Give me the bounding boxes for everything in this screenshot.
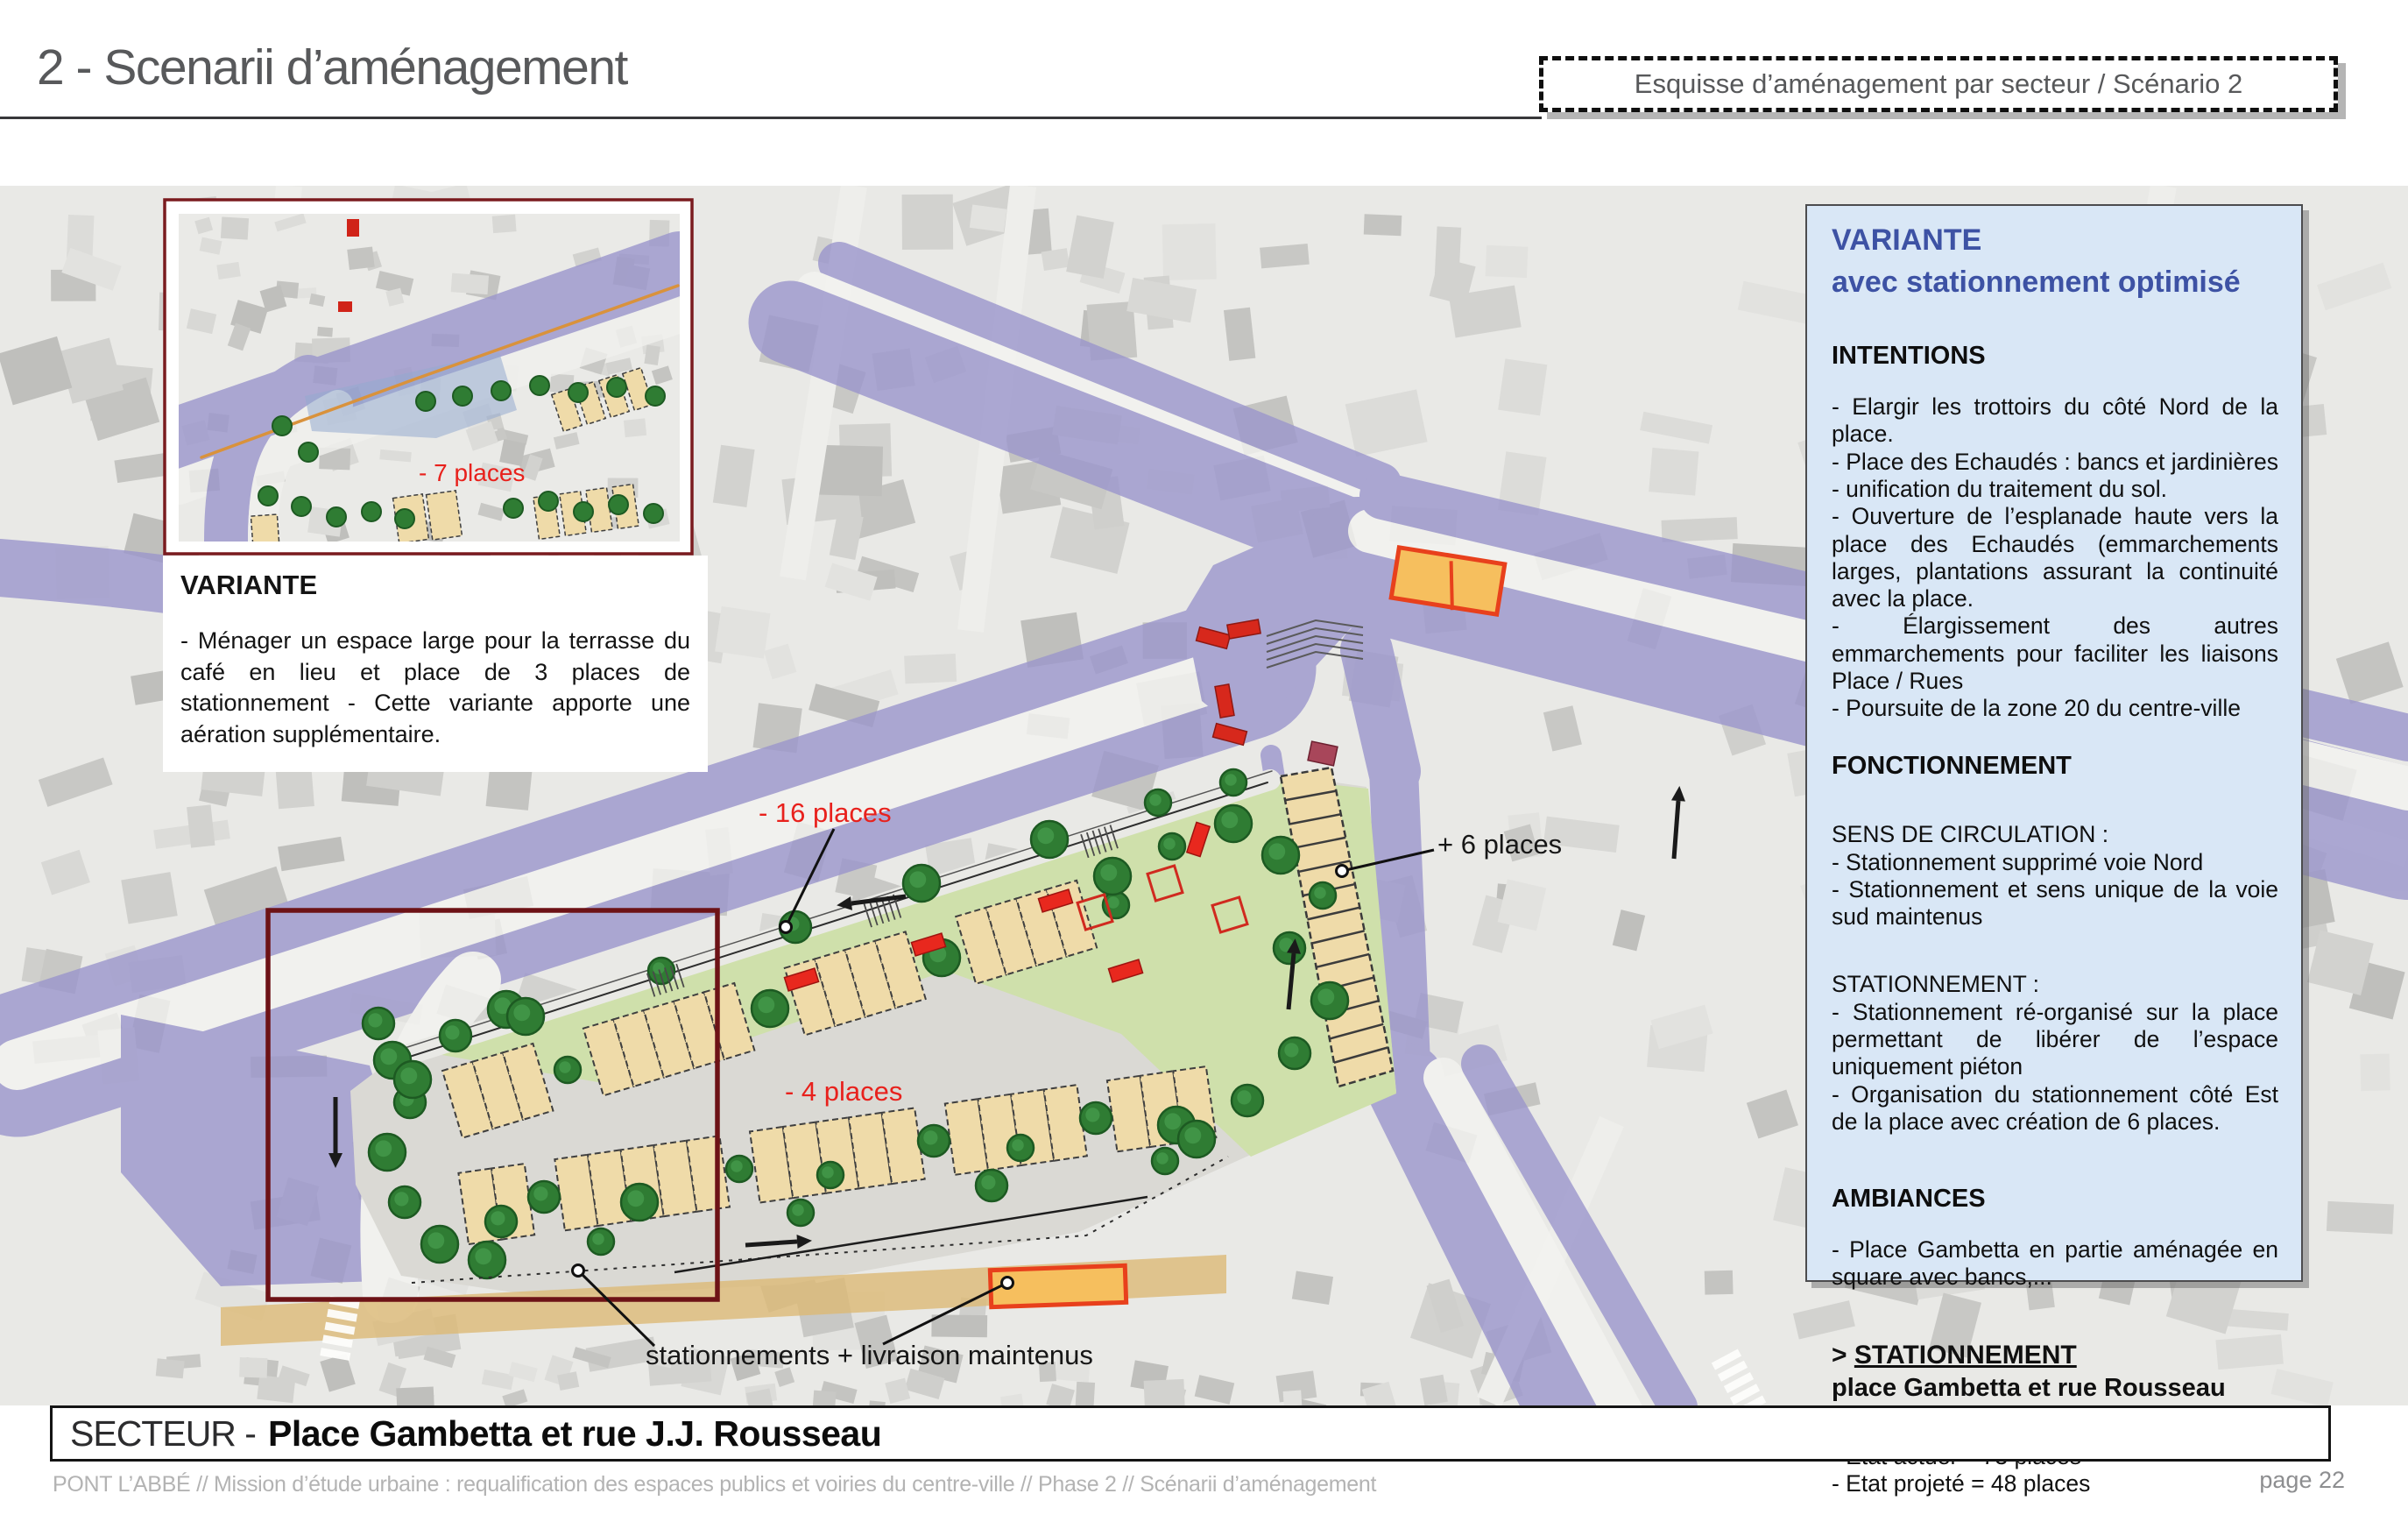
- variante-note: VARIANTE - Ménager un espace large pour …: [163, 556, 708, 772]
- secteur-name: Place Gambetta et rue J.J. Rousseau: [268, 1413, 881, 1455]
- list-item: - Élargissement des autres emmarchements…: [1832, 612, 2278, 695]
- ambiances-list: - Place Gambetta en partie aménagée en s…: [1832, 1236, 2278, 1292]
- variante-note-heading: VARIANTE: [180, 570, 690, 601]
- panel-title-line1: VARIANTE: [1832, 220, 2278, 262]
- stationnement-block: STATIONNEMENT : - Stationnement ré-organ…: [1832, 971, 2278, 1136]
- list-item: - Stationnement supprimé voie Nord: [1832, 849, 2278, 876]
- page-number: page 22: [2259, 1467, 2345, 1494]
- sens-heading: SENS DE CIRCULATION :: [1832, 821, 2278, 848]
- stationnement-heading: STATIONNEMENT :: [1832, 971, 2278, 998]
- sens-block: SENS DE CIRCULATION : - Stationnement su…: [1832, 821, 2278, 931]
- page-title: 2 - Scenarii d’aménagement: [37, 39, 627, 96]
- list-item: - Place Gambetta en partie aménagée en s…: [1832, 1236, 2278, 1292]
- scenario-box: Esquisse d’aménagement par secteur / Scé…: [1539, 56, 2338, 112]
- list-item: - Place des Echaudés : bancs et jardiniè…: [1832, 449, 2278, 504]
- planning-document-page: { "header": { "title": "2 - Scenarii d’a…: [0, 0, 2408, 1529]
- header-rule: [0, 117, 1542, 119]
- list-item: - Ouverture de l’esplanade haute vers la…: [1832, 503, 2278, 612]
- secteur-bar: SECTEUR - Place Gambetta et rue J.J. Rou…: [50, 1405, 2331, 1462]
- label-minus-7-places: - 7 places: [419, 459, 525, 486]
- list-item: - Stationnement et sens unique de la voi…: [1832, 876, 2278, 931]
- intentions-list: - Elargir les trottoirs du côté Nord de …: [1832, 393, 2278, 722]
- ambiances-heading: AMBIANCES: [1832, 1185, 2278, 1214]
- fonctionnement-heading: FONCTIONNEMENT: [1832, 752, 2278, 781]
- list-item: - Etat projeté = 48 places: [1832, 1470, 2278, 1497]
- list-item: - Elargir les trottoirs du côté Nord de …: [1832, 393, 2278, 449]
- list-item: - Poursuite de la zone 20 du centre-vill…: [1832, 695, 2278, 722]
- panel-title: VARIANTE avec stationnement optimisé: [1832, 220, 2278, 303]
- panel-title-line2: avec stationnement optimisé: [1832, 262, 2278, 304]
- scenario-box-label: Esquisse d’aménagement par secteur / Scé…: [1635, 68, 2242, 100]
- detail-prefix: >: [1832, 1341, 1854, 1370]
- detail-heading-text: STATIONNEMENT: [1854, 1341, 2077, 1370]
- list-item: - Organisation du stationnement côté Est…: [1832, 1081, 2278, 1136]
- inset-map: [165, 200, 692, 556]
- footer-credit: PONT L’ABBÉ // Mission d’étude urbaine :…: [53, 1472, 1376, 1497]
- variante-note-body: - Ménager un espace large pour la terras…: [180, 626, 690, 751]
- intentions-heading: INTENTIONS: [1832, 342, 2278, 371]
- variante-panel: VARIANTE avec stationnement optimisé INT…: [1805, 204, 2303, 1282]
- label-minus-4-places: - 4 places: [785, 1076, 902, 1107]
- secteur-label: SECTEUR -: [70, 1413, 256, 1455]
- label-plus-6-places: + 6 places: [1437, 829, 1562, 860]
- stationnement-detail-sub: place Gambetta et rue Rousseau: [1832, 1374, 2278, 1403]
- label-stationnements-maintenus: stationnements + livraison maintenus: [646, 1340, 1093, 1370]
- list-item: - Stationnement ré-organisé sur la place…: [1832, 999, 2278, 1081]
- label-minus-16-places: - 16 places: [759, 797, 892, 828]
- stationnement-detail-heading: > STATIONNEMENT: [1832, 1341, 2278, 1370]
